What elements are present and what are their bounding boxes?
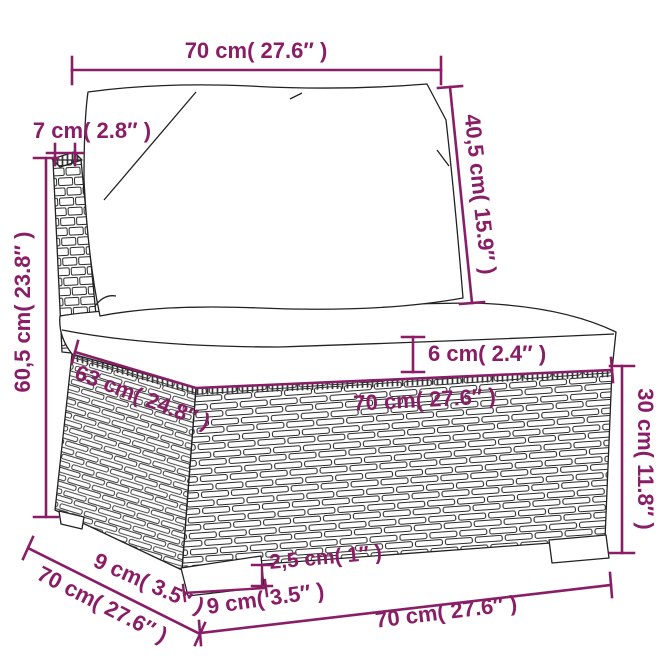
dim-bottom-width-label: 70 cm( 27.6″ ) [374,590,519,632]
dim-total-height-label: 60,5 cm( 23.8″ ) [10,232,35,393]
dim-bottom-width-tick-right [610,573,612,597]
dim-depth-tick-rear [23,537,33,559]
sofa-dimension-diagram: 70 cm( 27.6″ ) 7 cm( 2.8″ ) 40,5 cm( 15.… [0,0,666,666]
dim-panel-thickness-label: 7 cm( 2.8″ ) [33,118,151,143]
dim-base-height: 30 cm( 11.8″ ) [610,366,658,553]
dim-back-cushion-height-tick-top [438,86,462,88]
dim-total-height: 60,5 cm( 23.8″ ) [10,158,58,517]
dim-top-width-label: 70 cm( 27.6″ ) [185,38,328,63]
dimension-diagram-page: 70 cm( 27.6″ ) 7 cm( 2.8″ ) 40,5 cm( 15.… [0,0,666,666]
dim-cushion-thickness-label: 6 cm( 2.4″ ) [428,341,546,366]
sofa-line-art [52,84,616,596]
dim-top-width: 70 cm( 27.6″ ) [72,38,441,84]
dim-base-height-label: 30 cm( 11.8″ ) [633,388,658,529]
dim-bottom-width-tick-left [199,621,201,645]
sofa-foot-front-right [549,535,609,563]
